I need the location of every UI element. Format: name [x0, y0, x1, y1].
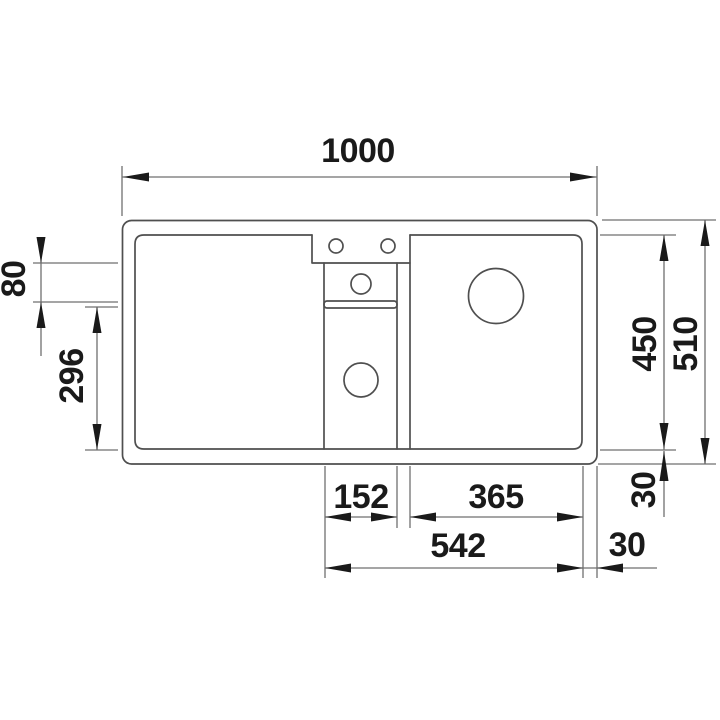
faucet-hole-left-icon	[329, 239, 343, 253]
dim-half-bowl-width-label: 152	[333, 480, 388, 514]
dim-overall-width-label: 1000	[321, 134, 395, 168]
arrow-left-icon	[410, 513, 436, 522]
dim-rim-width-right-label: 30	[609, 528, 646, 562]
dim-bowls-overall-width-label: 542	[430, 529, 485, 563]
half-bowl-drain-icon	[344, 363, 378, 397]
arrow-left-icon	[597, 564, 623, 573]
dim-main-bowl-width-label: 365	[468, 480, 523, 514]
dim-overall-depth-label: 510	[669, 316, 703, 371]
faucet-ledge-notch	[312, 235, 410, 263]
sink-outer-edge	[123, 221, 598, 465]
sink-inner-rim	[135, 235, 582, 449]
arrow-up-icon	[660, 235, 669, 261]
dim-rim-depth-bottom-label: 30	[627, 472, 661, 509]
arrow-down-icon	[701, 438, 710, 464]
tray-drain-icon	[351, 274, 371, 294]
drawing-linework	[0, 0, 720, 720]
arrow-right-icon	[570, 173, 596, 182]
dim-deck-band-height-label: 80	[0, 261, 31, 298]
main-bowl-drain-icon	[469, 269, 524, 324]
arrow-right-icon	[557, 564, 583, 573]
arrow-down-icon	[660, 423, 669, 449]
bowl-divider-strip	[324, 301, 397, 308]
sink-geometry	[123, 221, 598, 465]
arrow-up-icon	[37, 302, 46, 328]
dim-inner-depth-label: 450	[628, 316, 662, 371]
arrow-left-icon	[123, 173, 149, 182]
arrow-up-icon	[701, 220, 710, 246]
dim-half-bowl-length-label: 296	[55, 348, 89, 403]
arrow-down-icon	[93, 424, 102, 450]
arrow-down-icon	[37, 237, 46, 263]
arrow-up-icon	[93, 307, 102, 333]
faucet-hole-right-icon	[381, 239, 395, 253]
arrow-right-icon	[557, 513, 583, 522]
arrow-left-icon	[325, 564, 351, 573]
technical-drawing-canvas: 1000 80 296 450 510 30 152 365 542 30	[0, 0, 720, 720]
